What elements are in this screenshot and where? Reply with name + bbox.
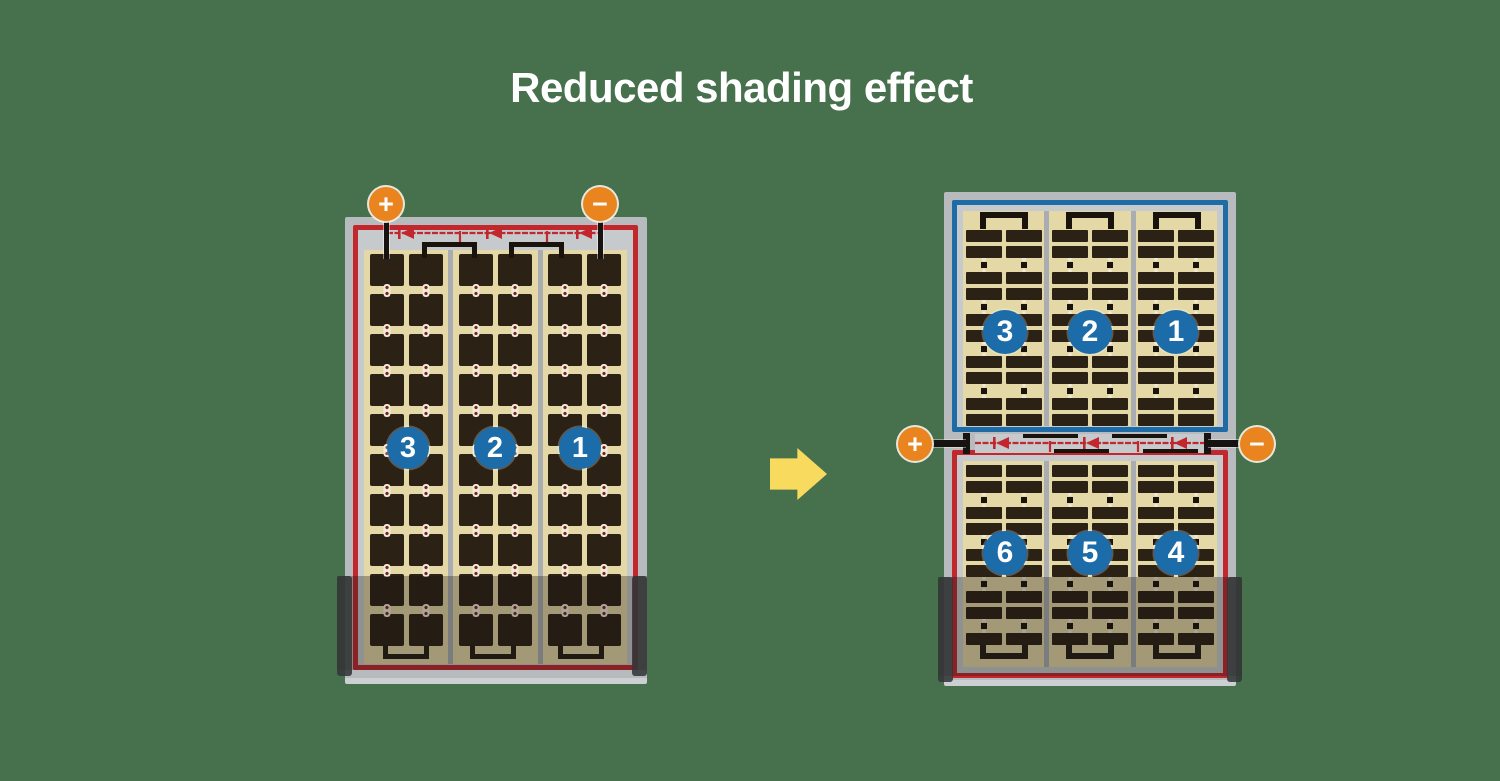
half-cut-cell — [1006, 230, 1042, 242]
cell-link-dot — [472, 404, 479, 417]
cell-gap — [409, 326, 443, 334]
left-positive-terminal: + — [369, 187, 403, 221]
cell-link-dot — [383, 564, 390, 577]
cell-link-dot — [511, 364, 518, 377]
cell-link-dot — [601, 564, 608, 577]
cell-gap — [370, 486, 404, 494]
solar-cell — [548, 294, 582, 326]
cell-link-dot — [601, 484, 608, 497]
half-cut-cell — [1178, 288, 1214, 300]
cell-link-dot — [1020, 384, 1028, 398]
half-cut-cell — [1138, 481, 1174, 493]
cell-link-dot — [1152, 493, 1160, 507]
half-cut-cell — [1006, 507, 1042, 519]
solar-cell — [459, 374, 493, 406]
half-cut-cell — [966, 272, 1002, 284]
cell-link-dot — [422, 564, 429, 577]
left-negative-wire — [598, 221, 603, 259]
right-string-label-1: 1 — [1154, 310, 1198, 354]
cell-link-dot — [562, 564, 569, 577]
half-cut-cell — [1178, 246, 1214, 258]
cell-link-dot — [1066, 493, 1074, 507]
solar-cell — [409, 254, 443, 286]
right-string-label-2: 2 — [1068, 310, 1112, 354]
cell-link-dot — [980, 258, 988, 272]
right-positive-wire — [930, 440, 966, 447]
cell-link-dot — [383, 284, 390, 297]
cell-gap — [587, 486, 621, 494]
cell-link-dot — [472, 484, 479, 497]
cell-gap — [1006, 493, 1042, 507]
cell-gap — [548, 326, 582, 334]
solar-cell — [548, 334, 582, 366]
solar-cell — [587, 494, 621, 526]
cell-link-dot — [472, 284, 479, 297]
half-cut-cell — [1052, 507, 1088, 519]
left-string-label-1: 1 — [559, 427, 601, 469]
right-negative-wire — [1208, 440, 1243, 447]
cell-link-dot — [1020, 493, 1028, 507]
cell-link-dot — [601, 444, 608, 457]
diagram-title: Reduced shading effect — [0, 64, 1483, 112]
half-cut-cell — [966, 288, 1002, 300]
cell-gap — [498, 366, 532, 374]
solar-cell — [370, 374, 404, 406]
left-string-label-2: 2 — [474, 427, 516, 469]
cell-link-dot — [1020, 258, 1028, 272]
half-cut-cell — [1138, 272, 1174, 284]
half-cut-cell — [966, 465, 1002, 477]
cell-gap — [370, 526, 404, 534]
cell-link-dot — [383, 484, 390, 497]
cell-gap — [459, 326, 493, 334]
right-shading-edge — [938, 577, 953, 682]
cell-gap — [370, 286, 404, 294]
solar-cell — [370, 334, 404, 366]
half-cut-cell — [1138, 414, 1174, 426]
cell-link-dot — [980, 300, 988, 314]
right-string-label-5: 5 — [1068, 531, 1112, 575]
cell-link-dot — [511, 404, 518, 417]
left-shading-overlay — [337, 576, 647, 670]
cell-gap — [370, 406, 404, 414]
cell-link-dot — [1152, 258, 1160, 272]
half-cut-cell — [1178, 398, 1214, 410]
half-cut-cell — [1052, 230, 1088, 242]
half-cut-cell — [1178, 372, 1214, 384]
cell-gap — [1138, 258, 1174, 272]
transform-arrow-icon — [770, 448, 827, 500]
half-cut-cell — [1178, 272, 1214, 284]
cell-gap — [409, 486, 443, 494]
half-cut-cell — [1138, 372, 1174, 384]
cell-gap — [459, 366, 493, 374]
half-cut-cell — [1138, 465, 1174, 477]
cell-gap — [966, 384, 1002, 398]
cell-link-dot — [601, 364, 608, 377]
cell-gap — [548, 566, 582, 574]
cell-link-dot — [1066, 384, 1074, 398]
cell-gap — [498, 326, 532, 334]
right-bypass-diode-line-icon — [975, 434, 1210, 453]
cell-gap — [459, 286, 493, 294]
half-cut-cell — [1006, 372, 1042, 384]
half-cut-cell — [1052, 481, 1088, 493]
cell-gap — [548, 286, 582, 294]
cell-gap — [1178, 384, 1214, 398]
cell-gap — [370, 326, 404, 334]
cell-link-dot — [472, 324, 479, 337]
cell-gap — [1006, 258, 1042, 272]
right-string-label-6: 6 — [983, 531, 1027, 575]
half-cut-cell — [1006, 481, 1042, 493]
cell-link-dot — [511, 564, 518, 577]
cell-link-dot — [1192, 384, 1200, 398]
half-cut-cell — [1178, 481, 1214, 493]
half-cut-cell — [966, 414, 1002, 426]
reduced-shading-diagram: Reduced shading effect + − 3 2 1 + − 3 2… — [0, 0, 1500, 781]
cell-gap — [587, 326, 621, 334]
solar-cell — [498, 494, 532, 526]
solar-cell — [459, 294, 493, 326]
cell-gap — [1138, 493, 1174, 507]
cell-link-dot — [422, 284, 429, 297]
half-cut-cell — [966, 507, 1002, 519]
solar-cell — [370, 534, 404, 566]
cell-link-dot — [562, 284, 569, 297]
cell-link-dot — [422, 364, 429, 377]
cell-link-dot — [422, 324, 429, 337]
cell-link-dot — [383, 524, 390, 537]
cell-gap — [498, 286, 532, 294]
solar-cell — [498, 374, 532, 406]
cell-gap — [409, 526, 443, 534]
cell-gap — [1138, 384, 1174, 398]
half-cut-cell — [1006, 356, 1042, 368]
cell-link-dot — [422, 484, 429, 497]
half-cut-cell — [1006, 272, 1042, 284]
half-cut-cell — [966, 356, 1002, 368]
left-string-label-3: 3 — [387, 427, 429, 469]
cell-gap — [548, 406, 582, 414]
cell-gap — [498, 526, 532, 534]
cell-link-dot — [980, 384, 988, 398]
right-string-label-3: 3 — [983, 310, 1027, 354]
solar-cell — [370, 494, 404, 526]
half-cut-cell — [1052, 246, 1088, 258]
solar-cell — [587, 294, 621, 326]
cell-link-dot — [1152, 384, 1160, 398]
cell-gap — [498, 406, 532, 414]
half-cut-cell — [1006, 246, 1042, 258]
solar-cell — [370, 294, 404, 326]
cell-link-dot — [1020, 300, 1028, 314]
half-cut-cell — [1178, 414, 1214, 426]
cell-gap — [1052, 258, 1088, 272]
cell-link-dot — [383, 404, 390, 417]
solar-cell — [548, 534, 582, 566]
half-cut-cell — [1052, 398, 1088, 410]
cell-link-dot — [383, 364, 390, 377]
cell-link-dot — [472, 524, 479, 537]
cell-gap — [587, 526, 621, 534]
half-cut-cell — [1092, 414, 1128, 426]
half-cut-cell — [1092, 372, 1128, 384]
half-cut-cell — [1006, 398, 1042, 410]
solar-cell — [548, 374, 582, 406]
cell-link-dot — [383, 324, 390, 337]
cell-link-dot — [562, 404, 569, 417]
cell-link-dot — [511, 524, 518, 537]
right-top-busbar-connector — [1066, 212, 1114, 229]
half-cut-cell — [1092, 288, 1128, 300]
half-cut-cell — [1092, 481, 1128, 493]
half-cut-cell — [1092, 398, 1128, 410]
cell-gap — [498, 566, 532, 574]
solar-cell — [409, 494, 443, 526]
cell-link-dot — [1192, 258, 1200, 272]
cell-link-dot — [1106, 258, 1114, 272]
solar-cell — [587, 534, 621, 566]
solar-cell — [587, 334, 621, 366]
cell-link-dot — [601, 524, 608, 537]
cell-gap — [548, 366, 582, 374]
right-positive-terminal: + — [898, 427, 932, 461]
half-cut-cell — [1178, 230, 1214, 242]
solar-cell — [498, 334, 532, 366]
cell-link-dot — [472, 364, 479, 377]
cell-link-dot — [1066, 300, 1074, 314]
right-top-busbar-connector — [1153, 212, 1201, 229]
cell-link-dot — [511, 484, 518, 497]
half-cut-cell — [966, 230, 1002, 242]
half-cut-cell — [966, 398, 1002, 410]
solar-cell — [548, 494, 582, 526]
solar-cell — [409, 374, 443, 406]
cell-link-dot — [562, 484, 569, 497]
cell-gap — [1006, 384, 1042, 398]
cell-link-dot — [511, 324, 518, 337]
cell-link-dot — [1192, 300, 1200, 314]
cell-link-dot — [422, 404, 429, 417]
cell-gap — [409, 286, 443, 294]
cell-link-dot — [1192, 493, 1200, 507]
right-negative-terminal: − — [1240, 427, 1274, 461]
half-cut-cell — [1052, 356, 1088, 368]
half-cut-cell — [1138, 507, 1174, 519]
right-shading-overlay — [938, 577, 1242, 676]
left-positive-wire — [384, 221, 389, 259]
left-shading-edge — [632, 576, 647, 676]
left-bypass-diode-line-icon — [387, 226, 601, 248]
cell-link-dot — [980, 493, 988, 507]
half-cut-cell — [1052, 272, 1088, 284]
cell-link-dot — [601, 404, 608, 417]
half-cut-cell — [1138, 398, 1174, 410]
half-cut-cell — [1006, 288, 1042, 300]
cell-gap — [1092, 493, 1128, 507]
cell-gap — [1092, 384, 1128, 398]
right-shading-edge — [1227, 577, 1242, 682]
right-string-label-4: 4 — [1154, 531, 1198, 575]
half-cut-cell — [1092, 507, 1128, 519]
solar-cell — [587, 374, 621, 406]
solar-cell — [459, 254, 493, 286]
half-cut-cell — [1006, 414, 1042, 426]
half-cut-cell — [1052, 414, 1088, 426]
half-cut-cell — [1138, 230, 1174, 242]
half-cut-cell — [1052, 288, 1088, 300]
left-shading-edge — [337, 576, 352, 676]
cell-gap — [459, 526, 493, 534]
cell-link-dot — [472, 564, 479, 577]
solar-cell — [548, 254, 582, 286]
half-cut-cell — [1092, 356, 1128, 368]
cell-gap — [409, 366, 443, 374]
cell-gap — [409, 406, 443, 414]
cell-gap — [1178, 258, 1214, 272]
solar-cell — [587, 254, 621, 286]
solar-cell — [498, 254, 532, 286]
cell-gap — [587, 566, 621, 574]
half-cut-cell — [1092, 272, 1128, 284]
cell-gap — [966, 258, 1002, 272]
cell-gap — [1052, 384, 1088, 398]
solar-cell — [459, 534, 493, 566]
cell-gap — [1052, 493, 1088, 507]
cell-link-dot — [601, 284, 608, 297]
half-cut-cell — [1092, 465, 1128, 477]
half-cut-cell — [966, 372, 1002, 384]
cell-link-dot — [1066, 258, 1074, 272]
solar-cell — [409, 534, 443, 566]
cell-gap — [459, 406, 493, 414]
cell-gap — [1092, 258, 1128, 272]
half-cut-cell — [1178, 507, 1214, 519]
cell-link-dot — [1106, 300, 1114, 314]
half-cut-cell — [1006, 465, 1042, 477]
cell-link-dot — [1106, 384, 1114, 398]
cell-gap — [548, 526, 582, 534]
solar-cell — [498, 534, 532, 566]
cell-link-dot — [422, 524, 429, 537]
cell-gap — [587, 406, 621, 414]
cell-gap — [587, 366, 621, 374]
solar-cell — [409, 294, 443, 326]
cell-link-dot — [562, 524, 569, 537]
solar-cell — [409, 334, 443, 366]
cell-gap — [966, 493, 1002, 507]
cell-gap — [459, 486, 493, 494]
solar-cell — [459, 494, 493, 526]
solar-cell — [459, 334, 493, 366]
half-cut-cell — [1138, 246, 1174, 258]
cell-link-dot — [511, 284, 518, 297]
half-cut-cell — [1092, 246, 1128, 258]
cell-gap — [548, 486, 582, 494]
half-cut-cell — [1138, 356, 1174, 368]
cell-gap — [409, 566, 443, 574]
solar-cell — [498, 294, 532, 326]
cell-gap — [498, 486, 532, 494]
cell-gap — [459, 566, 493, 574]
cell-link-dot — [601, 324, 608, 337]
cell-link-dot — [1152, 300, 1160, 314]
cell-link-dot — [562, 364, 569, 377]
cell-gap — [370, 366, 404, 374]
half-cut-cell — [966, 481, 1002, 493]
half-cut-cell — [1138, 288, 1174, 300]
half-cut-cell — [1178, 465, 1214, 477]
half-cut-cell — [1052, 372, 1088, 384]
cell-gap — [370, 566, 404, 574]
cell-link-dot — [1106, 493, 1114, 507]
half-cut-cell — [966, 246, 1002, 258]
cell-gap — [587, 286, 621, 294]
cell-gap — [1178, 493, 1214, 507]
half-cut-cell — [1178, 356, 1214, 368]
half-cut-cell — [1092, 230, 1128, 242]
cell-link-dot — [562, 324, 569, 337]
left-negative-terminal: − — [583, 187, 617, 221]
right-top-busbar-connector — [980, 212, 1028, 229]
half-cut-cell — [1052, 465, 1088, 477]
